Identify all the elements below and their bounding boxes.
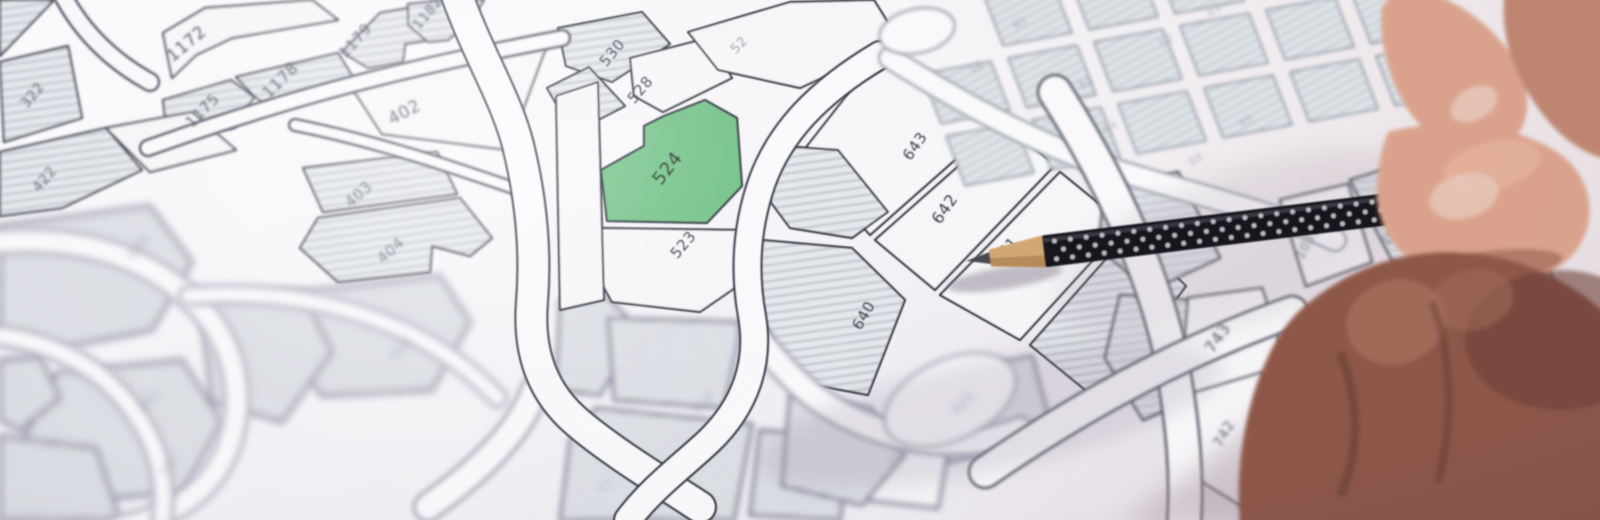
overlays: [0, 0, 1600, 520]
cadastral-map-photo: 4054354654859106016259111721175117811791…: [0, 0, 1600, 520]
map-canvas: 4054354654859106016259111721175117811791…: [0, 0, 1600, 520]
vignette: [0, 0, 1600, 520]
